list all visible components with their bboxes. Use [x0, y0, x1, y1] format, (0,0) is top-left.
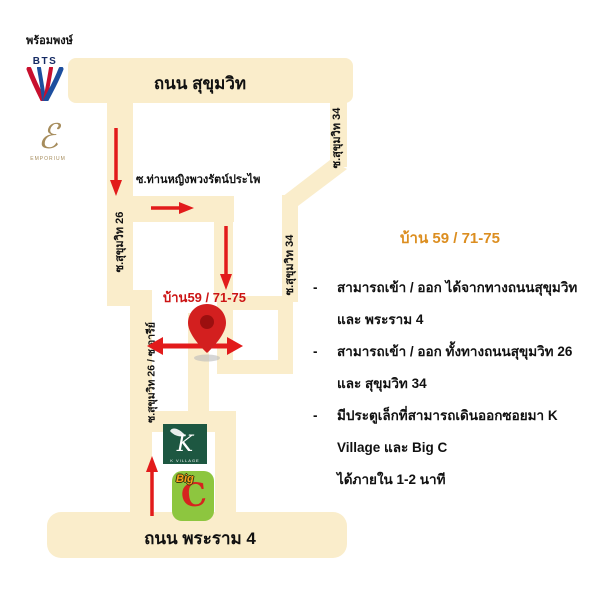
label-soi34-upper: ซ.สุขุมวิท 34: [327, 106, 345, 170]
label-rama4-road: ถนน พระราม 4: [120, 525, 280, 552]
bts-logo-mark: [26, 67, 64, 101]
emporium-logo-word: EMPORIUM: [28, 156, 68, 162]
k-village-logo: K K VILLAGE: [163, 424, 207, 464]
label-soi26: ซ.สุขุมวิท 26: [110, 197, 128, 287]
list-item: - มีประตูเล็กที่สามารถเดินออกซอยมา K Vil…: [313, 400, 600, 496]
label-soi34-lower: ซ.สุขุมวิท 34: [280, 227, 298, 303]
k-village-word: K VILLAGE: [163, 458, 207, 463]
list-item: - สามารถเข้า / ออก ได้จากทางถนนสุขุมวิท …: [313, 272, 600, 336]
label-sukhumvit-road: ถนน สุขุมวิท: [130, 70, 270, 97]
big-c-logo: C Big: [172, 471, 214, 521]
big-c-word: Big: [176, 473, 194, 485]
label-thanying: ซ.ท่านหญิงพวงรัตน์ประไพ: [136, 170, 260, 188]
bullet-dash: -: [313, 272, 325, 336]
road-pin-soi: [188, 313, 209, 425]
info-bullet-list: - สามารถเข้า / ออก ได้จากทางถนนสุขุมวิท …: [313, 272, 600, 496]
bullet-dash: -: [313, 400, 325, 496]
info-title: บ้าน 59 / 71-75: [355, 226, 545, 250]
bts-logo-word: BTS: [26, 56, 64, 67]
bullet-line: สามารถเข้า / ออก ทั้งทางถนนสุขุมวิท 26 แ…: [337, 344, 572, 391]
road-block-ring-hole: [233, 310, 278, 360]
label-soi26-aree: ซ.สุขุมวิท 26 / ซ.อารีย์: [143, 313, 160, 433]
direction-map: ถนน สุขุมวิท ถนน พระราม 4 ซ.สุขุมวิท 26 …: [0, 0, 600, 600]
emporium-logo-mark: ℰ: [28, 120, 68, 154]
bullet-text: สามารถเข้า / ออก ทั้งทางถนนสุขุมวิท 26 แ…: [337, 336, 600, 400]
bullet-text: สามารถเข้า / ออก ได้จากทางถนนสุขุมวิท แล…: [337, 272, 600, 336]
label-house-59-71-75: บ้าน59 / 71-75: [163, 287, 246, 308]
road-lower-right-vertical: [215, 411, 236, 514]
k-village-leaf-icon: [169, 427, 187, 437]
bullet-dash: -: [313, 336, 325, 400]
bts-station-name: พร้อมพงษ์: [26, 31, 73, 49]
bullet-line: มีประตูเล็กที่สามารถเดินออกซอยมา K Villa…: [337, 400, 600, 464]
list-item: - สามารถเข้า / ออก ทั้งทางถนนสุขุมวิท 26…: [313, 336, 600, 400]
bullet-line: สามารถเข้า / ออก ได้จากทางถนนสุขุมวิท แล…: [337, 280, 577, 327]
emporium-logo: ℰ EMPORIUM: [28, 120, 68, 162]
bullet-text: มีประตูเล็กที่สามารถเดินออกซอยมา K Villa…: [337, 400, 600, 496]
bts-logo: BTS: [26, 56, 64, 106]
bullet-line: ได้ภายใน 1-2 นาที: [337, 464, 600, 496]
road-mid-vertical: [214, 200, 233, 300]
